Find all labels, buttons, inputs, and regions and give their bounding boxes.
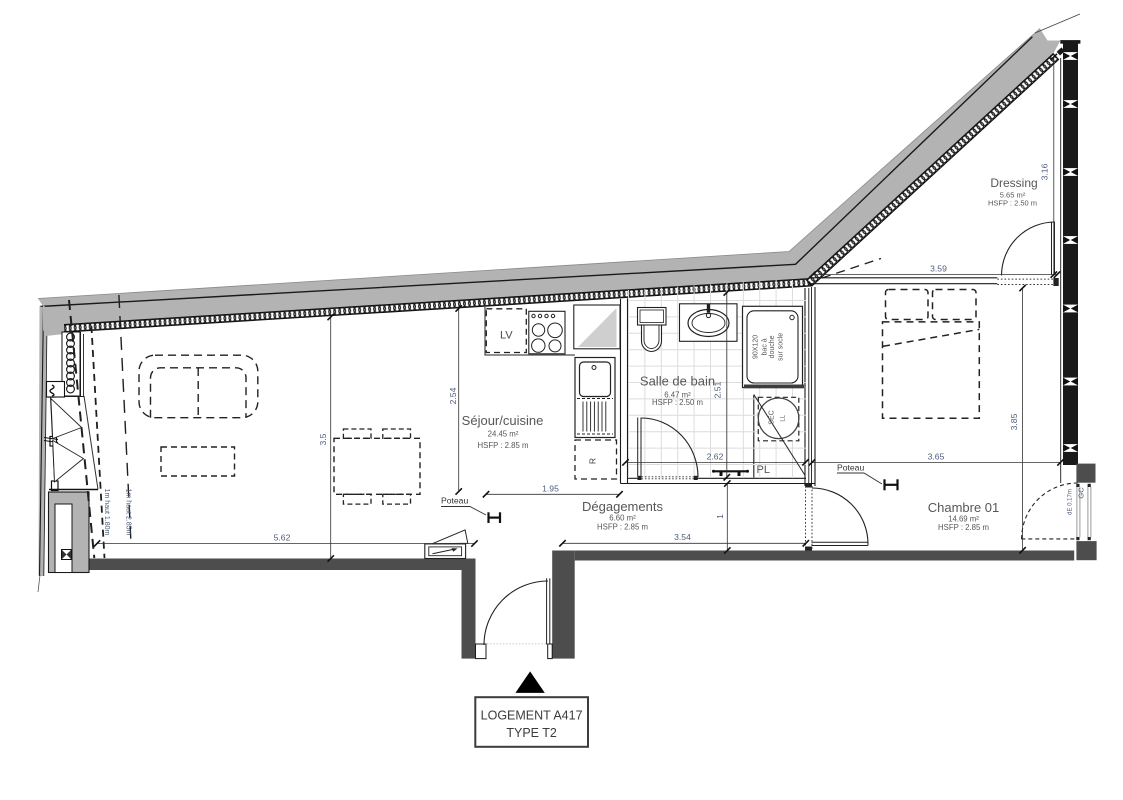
svg-text:1m haut 2.85m: 1m haut 2.85m — [125, 489, 132, 536]
svg-text:R: R — [588, 458, 598, 464]
svg-text:HSFP : 2.50 m: HSFP : 2.50 m — [988, 199, 1037, 208]
svg-text:2.54: 2.54 — [448, 387, 458, 404]
svg-text:LV: LV — [500, 329, 513, 341]
svg-text:24.45 m²: 24.45 m² — [488, 430, 519, 439]
svg-text:PL: PL — [757, 464, 770, 476]
svg-text:Poteau: Poteau — [441, 496, 468, 506]
svg-text:3.5: 3.5 — [318, 433, 328, 445]
svg-text:Chambre 01: Chambre 01 — [928, 500, 1000, 515]
svg-text:bac à: bac à — [761, 338, 768, 355]
svg-text:LL: LL — [781, 414, 787, 421]
svg-text:TYPE T2: TYPE T2 — [506, 726, 557, 740]
svg-text:douche: douche — [769, 335, 776, 358]
svg-text:Salle de bain: Salle de bain — [640, 374, 715, 389]
svg-text:Dégagements: Dégagements — [582, 499, 663, 514]
svg-text:90X120: 90X120 — [752, 335, 759, 359]
svg-text:Séjour/cuisine: Séjour/cuisine — [462, 413, 544, 428]
svg-text:sur socle: sur socle — [777, 333, 784, 361]
svg-text:SEC: SEC — [768, 410, 775, 424]
svg-text:1.95: 1.95 — [542, 484, 559, 494]
svg-text:HSFP : 2.85 m: HSFP : 2.85 m — [938, 523, 989, 532]
svg-text:2.62: 2.62 — [707, 451, 724, 461]
svg-text:5.62: 5.62 — [274, 533, 291, 543]
svg-text:HSFP : 2.85 m: HSFP : 2.85 m — [597, 523, 648, 532]
svg-text:LOGEMENT A417: LOGEMENT A417 — [481, 709, 583, 723]
svg-text:3.59: 3.59 — [930, 264, 947, 274]
svg-text:3.85: 3.85 — [1009, 413, 1019, 430]
svg-text:dE 0.17m: dE 0.17m — [1068, 489, 1074, 515]
svg-text:1: 1 — [715, 514, 725, 519]
svg-text:GC: GC — [1077, 487, 1086, 499]
svg-text:3.65: 3.65 — [928, 451, 945, 461]
svg-text:HSFP : 2.50 m: HSFP : 2.50 m — [652, 398, 703, 407]
svg-text:3.16: 3.16 — [1040, 163, 1050, 180]
svg-text:1m haut 1.80m: 1m haut 1.80m — [103, 489, 110, 536]
svg-text:3.54: 3.54 — [674, 532, 691, 542]
svg-text:Poteau: Poteau — [837, 463, 864, 473]
svg-text:Dressing: Dressing — [990, 176, 1037, 190]
svg-text:6.60 m²: 6.60 m² — [609, 514, 636, 523]
svg-text:HSFP : 2.85 m: HSFP : 2.85 m — [478, 441, 529, 450]
